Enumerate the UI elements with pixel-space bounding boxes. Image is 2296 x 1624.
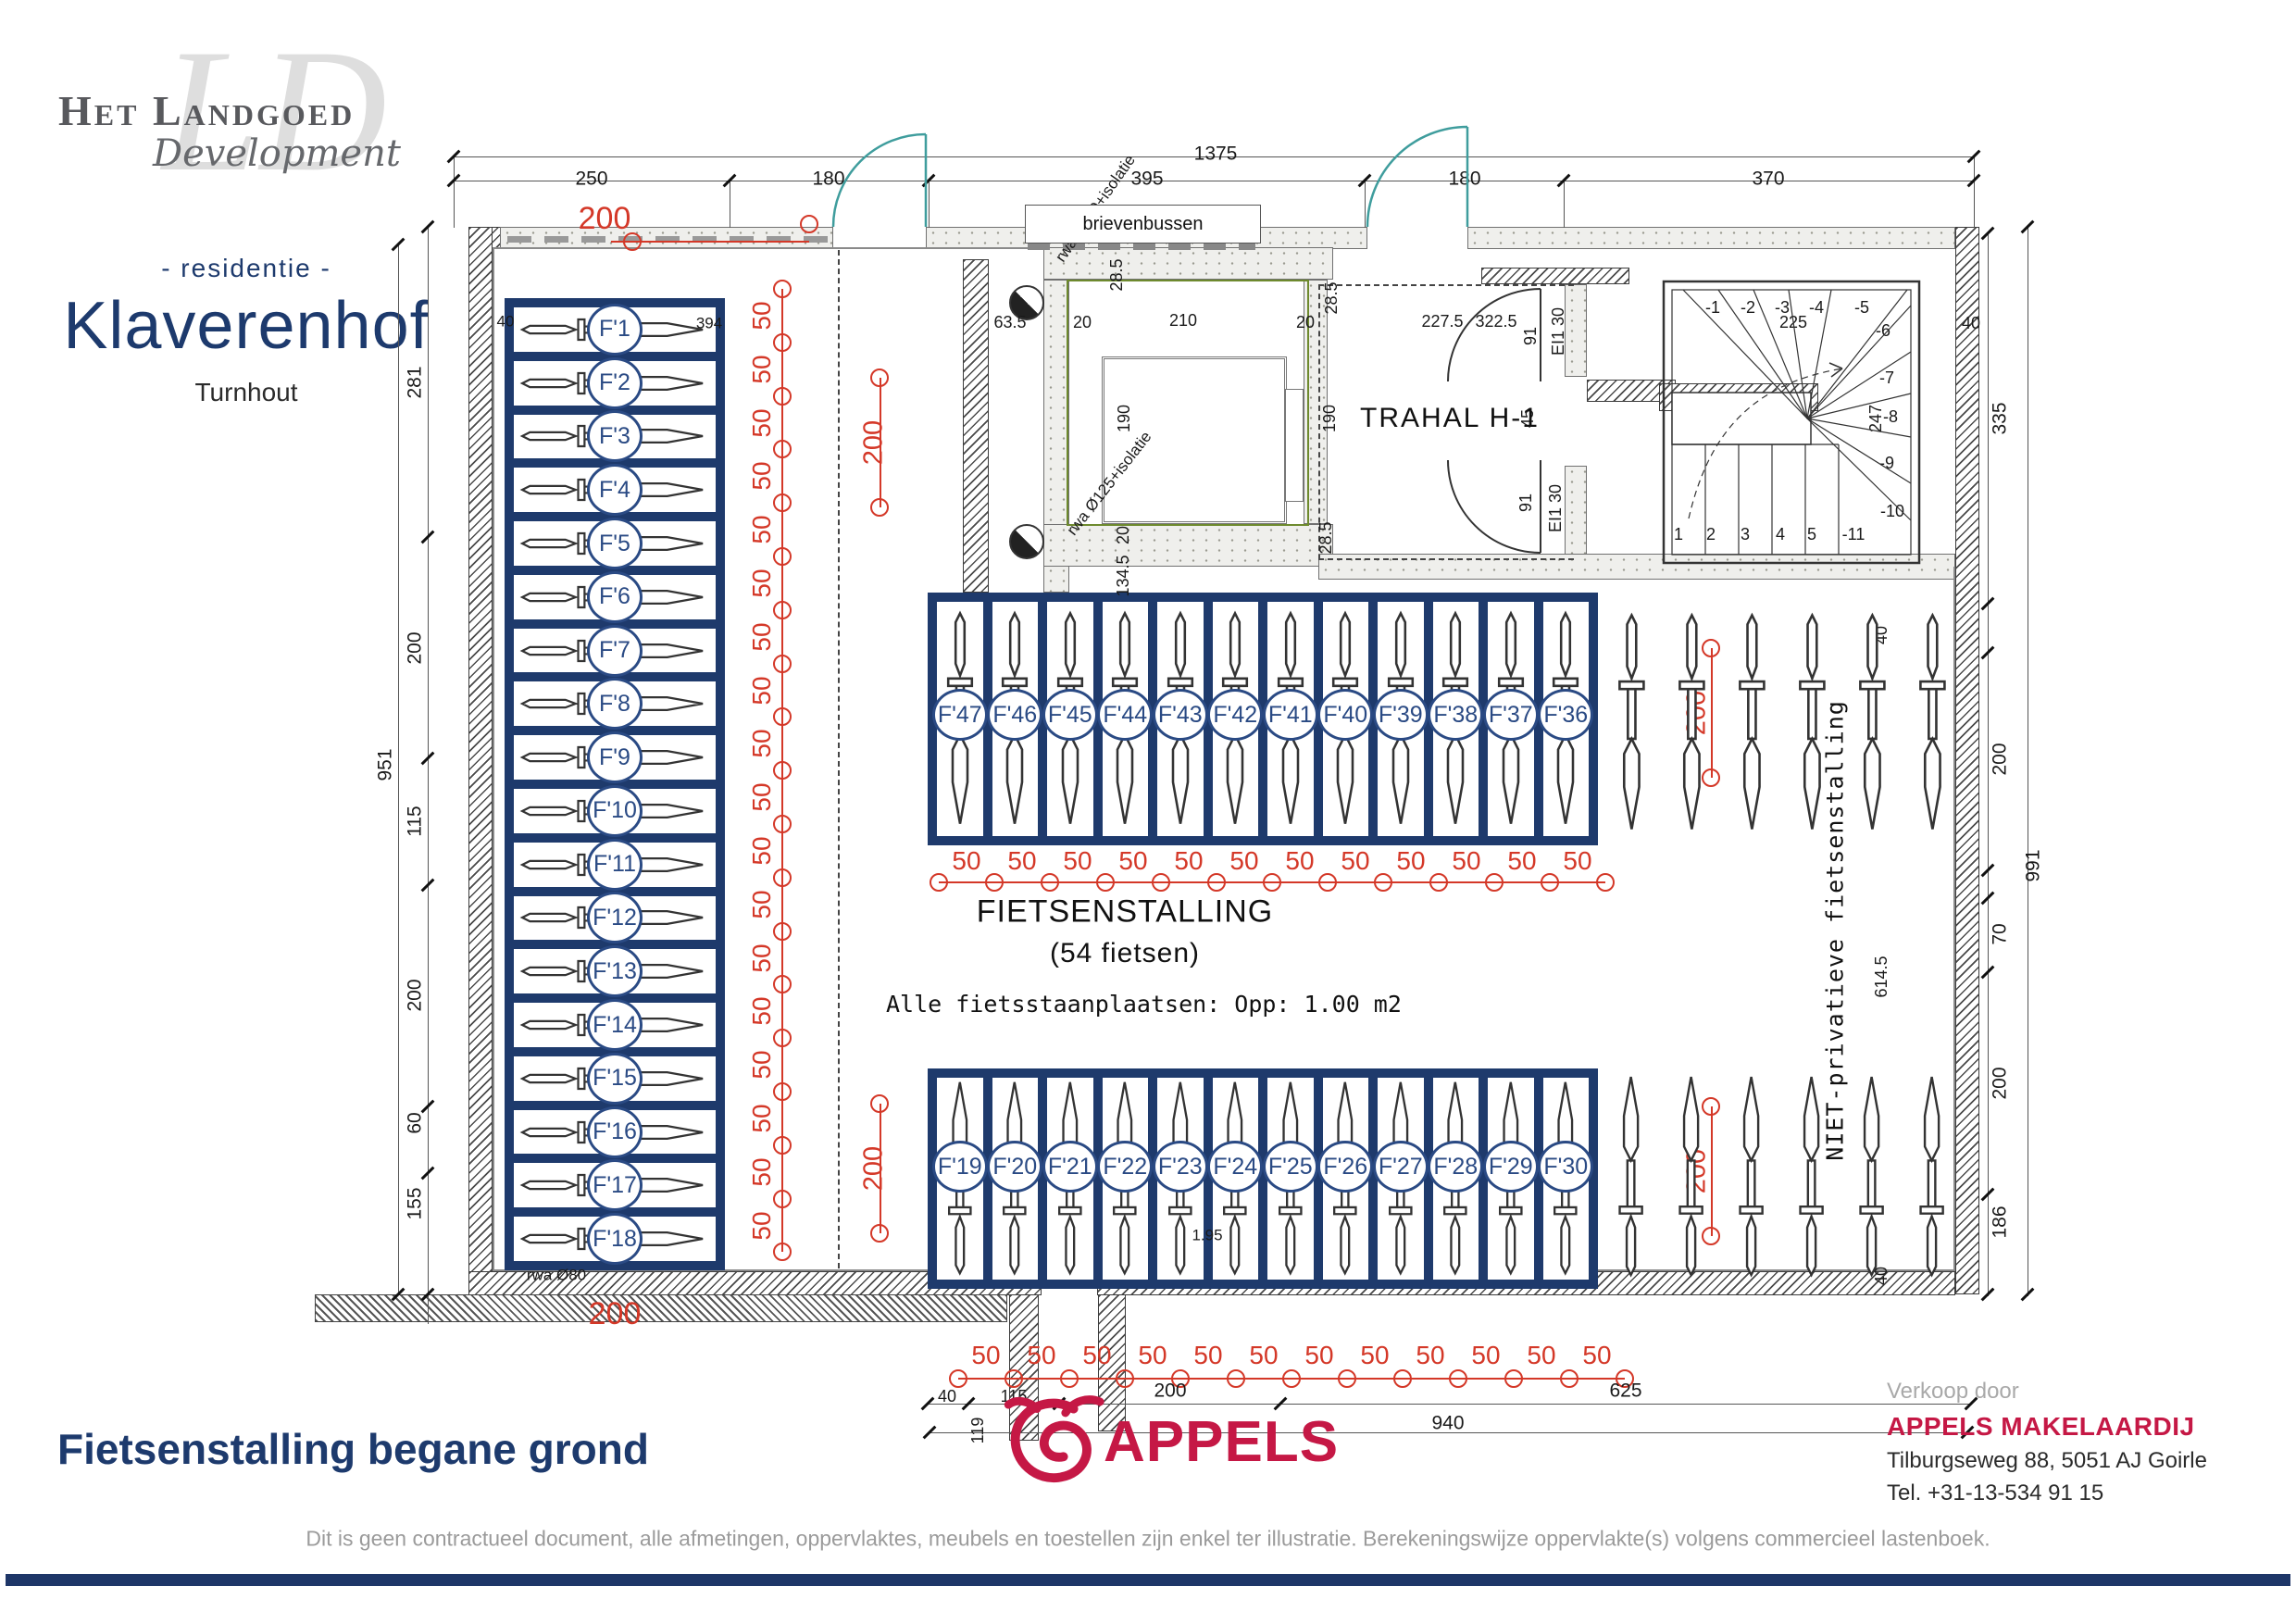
red-dim-circle [773,707,792,726]
mailboxes: brievenbussen [1025,205,1261,244]
appels-logo-text: APPELS [1104,1409,1339,1475]
red-label: 50 [1063,848,1092,874]
red-dim-circle [1429,873,1448,892]
dim-label: 200 [406,979,425,1011]
dim-line [398,244,399,1294]
red-label: 50 [749,890,775,918]
dim-label: 227.5 [1421,313,1463,330]
wall [1565,466,1587,558]
red-dim-circle [1227,1369,1245,1388]
footer-bar [6,1574,2290,1586]
dim-label: 40 [497,314,515,330]
stall-badge: F'42 [1207,689,1263,741]
stall-badge: F'44 [1097,689,1153,741]
stair-label: -11 [1842,526,1865,543]
dim-label: 210 [1169,312,1197,329]
red-label: 50 [749,462,775,491]
elevator-cab [1102,356,1287,524]
bicycle-icon [1911,1071,1953,1280]
stall-badge: F'46 [987,689,1042,741]
red-label: 50 [1360,1343,1389,1368]
centerline [838,250,840,1268]
red-label: 200 [861,420,888,465]
red-label: 50 [1193,1343,1222,1368]
red-label: 50 [1452,848,1480,874]
bicycle-icon [1851,1071,1892,1280]
stall-badge: F'8 [587,678,643,730]
bicycle-icon [1669,609,1715,835]
red-label: 50 [749,516,775,544]
bicycle-icon [1791,1071,1832,1280]
dim-line [428,227,429,1324]
seller-phone: Tel. +31-13-534 91 15 [1887,1478,2276,1510]
stall-badge: F'13 [587,945,643,997]
red-dim-circle [1504,1369,1523,1388]
room-boundary [1318,284,1574,286]
red-label: 50 [749,301,775,330]
red-dim-circle [1485,873,1504,892]
bicycle-icon [1790,609,1835,835]
stair-label: -6 [1876,322,1890,339]
stall-badge: F'29 [1483,1141,1539,1193]
wall [1467,227,1955,249]
red-dim-circle [773,280,792,298]
seller-address: Tilburgseweg 88, 5051 AJ Goirle [1887,1445,2276,1478]
stall-badge: F'22 [1097,1141,1153,1193]
red-dim-circle [1116,1369,1134,1388]
red-dim-circle [1338,1369,1356,1388]
red-label: 50 [1082,1343,1111,1368]
red-dim-circle [1560,1369,1578,1388]
red-dim-circle [773,387,792,406]
stall-badge: F'18 [587,1213,643,1265]
red-label: 50 [749,355,775,383]
dim-label: 20 [1073,314,1092,331]
red-label: 50 [1507,848,1536,874]
stall-badge: F'7 [587,625,643,677]
red-label: 50 [1174,848,1203,874]
stall-badge: F'19 [932,1141,988,1193]
stall-badge: F'43 [1153,689,1208,741]
stair-label: -1 [1705,299,1720,316]
seller-block: Verkoop door APPELS MAKELAARDIJ Tilburgs… [1887,1376,2276,1510]
bicycle-icon [1850,609,1895,835]
wall-face-line [493,247,1045,249]
red-dim-circle [985,873,1004,892]
red-label: 50 [749,783,775,812]
red-dim-circle [773,1136,792,1155]
bicycle-icon [1610,1071,1652,1280]
stair-label: 225 [1779,314,1807,331]
red-label: 50 [1304,1343,1333,1368]
stall-badge: F'28 [1428,1141,1483,1193]
stall-badge: F'16 [587,1106,643,1158]
red-label: 50 [1249,1343,1278,1368]
hall-note: Alle fietsstaanplaatsen: Opp: 1.00 m2 [886,991,1402,1018]
dim-label: 190 [1321,405,1338,432]
stair-label: 4 [1776,526,1785,543]
wall [1659,383,1818,411]
red-label: 50 [1229,848,1258,874]
red-dim-circle [870,369,889,387]
red-label: 200 [589,1298,642,1330]
stall-badge: F'9 [587,731,643,783]
dim-label: 119 [969,1418,986,1444]
red-label: 50 [1285,848,1314,874]
red-label: 50 [1341,848,1369,874]
stall-badge: F'39 [1373,689,1429,741]
dim-label: 322.5 [1475,313,1516,330]
red-dim-circle [773,1190,792,1208]
stall-badge: F'15 [587,1053,643,1105]
dim-label: 335 [1990,402,2010,434]
red-label: 50 [1527,1343,1555,1368]
red-label: 50 [1396,848,1425,874]
red-dim-circle [773,868,792,887]
seller-name: APPELS MAKELAARDIJ [1887,1408,2276,1446]
elevator-door [1285,389,1304,502]
red-dim-circle [773,761,792,780]
red-label: 50 [1118,848,1147,874]
red-label: 50 [1582,1343,1611,1368]
dim-label: 180 [812,169,844,189]
dim-line [928,1404,1972,1405]
dim-label: 70 [1990,923,2010,944]
dim-label: 200 [1990,743,2010,775]
dim-label: 614.5 [1873,956,1890,997]
red-label: 50 [749,836,775,865]
bicycle-icon [1730,1071,1772,1280]
stall-badge: F'12 [587,892,643,943]
dim-label: 40 [938,1388,956,1405]
stall-badge: F'24 [1207,1141,1263,1193]
red-label: 50 [749,997,775,1026]
red-dim-circle [1318,873,1337,892]
dim-line [929,181,930,228]
red-dim-circle [773,815,792,833]
dim-label: 991 [2024,849,2043,881]
stair-label: -7 [1879,369,1894,386]
dim-line [454,156,455,228]
red-label: 200 [579,203,631,234]
stall-badge: F'23 [1153,1141,1208,1193]
stall-badge: F'36 [1538,689,1593,741]
dim-label: 91 [1522,327,1539,345]
red-label: 50 [1416,1343,1444,1368]
red-dim-circle [1596,873,1615,892]
dim-label: 28.5 [1317,521,1334,554]
dim-label: 155 [406,1187,425,1219]
stall-badge: F'30 [1538,1141,1593,1193]
red-dim-circle [773,440,792,458]
stair-label: 5 [1807,526,1816,543]
dim-line [454,181,1974,181]
red-dim-circle [1041,873,1059,892]
red-label: 200 [861,1146,888,1191]
stair-label: -2 [1741,299,1755,316]
dim-label: 28.5 [1108,258,1125,291]
wall [1043,247,1333,280]
dim-label: 250 [575,169,607,189]
hall-subtitle: (54 fietsen) [1050,938,1200,969]
red-dim-circle [949,1369,967,1388]
red-dim-circle [1096,873,1115,892]
wall-face-line [493,247,494,1271]
red-label: 50 [952,848,980,874]
stall-badge: F'10 [587,785,643,837]
dim-label: 200 [1154,1381,1186,1401]
red-dim-circle [773,1082,792,1101]
red-dim-circle [1207,873,1226,892]
red-dim-circle [773,922,792,941]
wall [468,227,493,1294]
red-dim-circle [1263,873,1281,892]
red-label: 50 [749,568,775,597]
stall-badge: F'1 [587,304,643,356]
red-label: 50 [749,730,775,758]
dim-label: 281 [406,366,425,398]
red-dim-circle [870,1094,889,1113]
wall [1955,227,1979,1294]
red-dim-circle [773,975,792,993]
red-label: 50 [749,1104,775,1132]
dim-line [2028,227,2028,1296]
red-label: 50 [1563,848,1591,874]
red-dim-circle [1004,1369,1023,1388]
stall-badge: F'2 [587,357,643,409]
stair-label: -4 [1809,299,1824,316]
dim-label: 63.5 [993,314,1026,331]
red-dim-circle [1541,873,1559,892]
stall-badge: F'27 [1373,1141,1429,1193]
stall-badge: F'21 [1042,1141,1098,1193]
stall-badge: F'3 [587,410,643,462]
red-dim-circle [870,1224,889,1243]
wall [315,1294,1007,1322]
red-dim-circle [1060,1369,1079,1388]
red-dim-circle [1282,1369,1301,1388]
stall-badge: F'25 [1263,1141,1318,1193]
dim-line [1974,156,1975,228]
mailboxes-label: brievenbussen [1082,214,1203,235]
disclaimer: Dit is geen contractueel document, alle … [306,1527,1990,1552]
red-dim-circle [773,493,792,512]
stall-badge: F'47 [932,689,988,741]
dim-label: 180 [1448,169,1480,189]
dim-label: 1375 [1194,144,1238,164]
bicycle-icon [1910,609,1955,835]
red-dim-circle [773,547,792,566]
stall-badge: F'6 [587,571,643,623]
dim-label: EI1 30 [1547,484,1564,532]
red-dim-circle [800,215,818,233]
dim-label: 186 [1990,1206,2010,1238]
red-dim-circle [870,498,889,517]
stall-badge: F'11 [587,839,643,891]
stall-badge: F'40 [1317,689,1373,741]
red-dim-circle [1449,1369,1467,1388]
dim-line [730,181,730,228]
dim-label: 40 [1962,315,1980,331]
red-dim-circle [773,1029,792,1047]
stall-badge: F'14 [587,999,643,1051]
dim-label: 60 [406,1112,425,1133]
red-dim-circle [1393,1369,1412,1388]
red-label: 50 [749,943,775,972]
red-dim-circle [773,333,792,352]
wall [1481,268,1629,284]
stair-label: -9 [1879,455,1894,471]
red-dim-circle [773,601,792,619]
dim-label: 91 [1517,493,1534,512]
red-dim-circle [1374,873,1392,892]
red-label: 50 [749,622,775,651]
stall-badge: F'20 [987,1141,1042,1193]
stair-label: 247 [1867,405,1884,432]
wall [1565,284,1587,377]
floorplan-sheet: LD Het Landgoed Development - residentie… [0,0,2296,1624]
stall-badge: F'17 [587,1159,643,1211]
stall-badge: F'37 [1483,689,1539,741]
red-label: 50 [749,676,775,705]
red-label: 50 [749,408,775,437]
stall-badge: F'26 [1317,1141,1373,1193]
hall-title: FIETSENSTALLING [977,894,1273,931]
dim-label: 370 [1752,169,1784,189]
red-label: 50 [1007,848,1036,874]
red-dim-circle [1152,873,1170,892]
dim-label: 115 [1001,1388,1028,1405]
red-label: 50 [1027,1343,1055,1368]
stair-label: -8 [1883,408,1898,425]
dim-label: 395 [1130,169,1163,189]
stair-label: -5 [1854,299,1869,316]
dim-label: 28.5 [1323,281,1340,314]
dim-label: 200 [406,631,425,664]
dim-label: 625 [1609,1381,1641,1401]
bicycle-icon [1609,609,1654,835]
stair-label: -10 [1880,503,1904,519]
stall-badge: F'38 [1428,689,1483,741]
red-label: 50 [971,1343,1000,1368]
dim-line [1365,181,1366,228]
stair-label: 3 [1741,526,1750,543]
red-label: 50 [1471,1343,1500,1368]
room-boundary [1318,558,1574,560]
dim-label: 115 [406,806,425,836]
red-dim-circle [773,1243,792,1261]
stair-label: 1 [1674,526,1683,543]
stall-badge: F'41 [1263,689,1318,741]
stall-badge: F'5 [587,518,643,569]
dim-label: 190 [1116,405,1132,432]
bicycle-icon [1670,1071,1712,1280]
floor-drain-icon [1009,524,1044,559]
stair-label: 2 [1706,526,1716,543]
red-label: 50 [749,1157,775,1186]
dim-label: 134.5 [1115,555,1131,596]
room-label: TRAHAL H-1 [1360,403,1540,434]
dim-line [1564,181,1565,228]
red-dim-circle [930,873,948,892]
dim-label: rwa Ø80 [527,1268,586,1283]
dim-label: EI1 30 [1550,307,1566,356]
seller-prefix: Verkoop door [1887,1376,2276,1408]
stall-badge: F'4 [587,464,643,516]
red-label: 50 [749,1051,775,1080]
dim-label: 20 [1115,526,1131,544]
stall-badge: F'45 [1042,689,1098,741]
wall [1043,524,1333,567]
dim-label: 951 [376,748,395,781]
red-label: 50 [1138,1343,1167,1368]
wall [963,259,989,593]
red-dim-circle [773,655,792,673]
page-title: Fietsenstalling begane grond [57,1424,649,1474]
bicycle-icon [1729,609,1775,835]
red-label: 50 [749,1211,775,1240]
dim-label: 200 [1990,1067,2010,1099]
dim-label: 20 [1296,314,1315,331]
dim-label: 940 [1431,1414,1464,1433]
